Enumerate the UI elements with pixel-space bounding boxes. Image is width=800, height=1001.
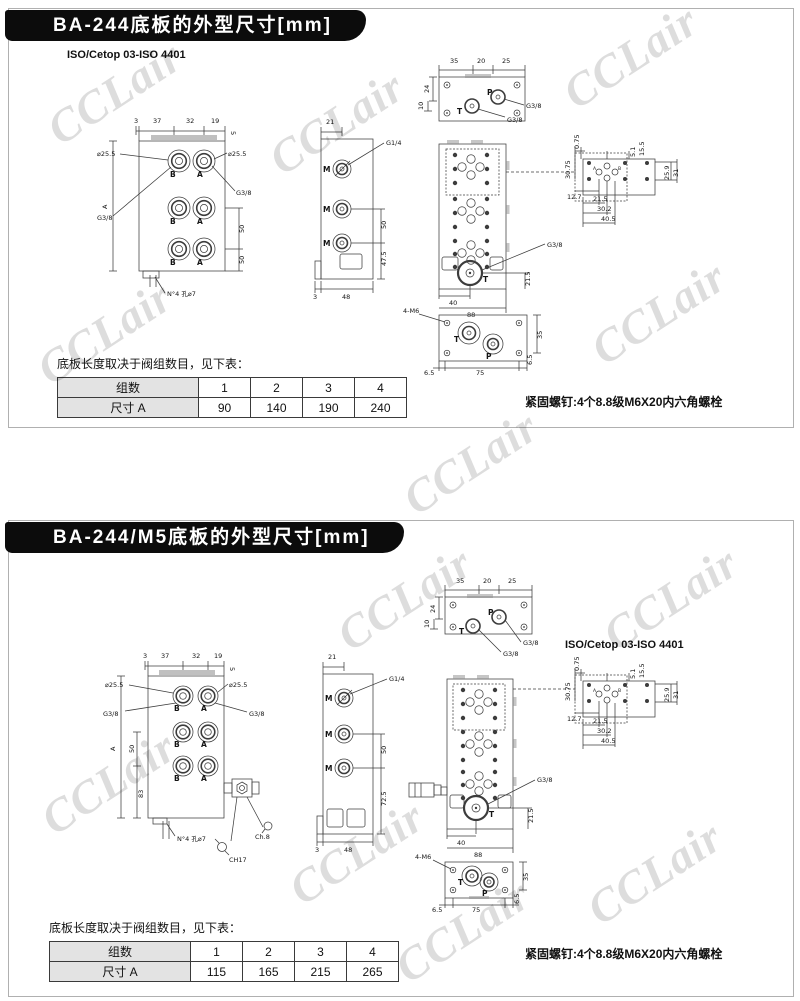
plan-view-drawing: T G3/8 40 88 21.5 (439, 140, 576, 319)
dim-label: 40.5 (601, 215, 615, 223)
port-label: P (488, 608, 494, 617)
dim-label: 88 (474, 851, 482, 859)
end-view-drawing: 35 20 25 24 10 P T G3/8 G3/8 (423, 577, 539, 658)
dim-label: 25 (502, 57, 510, 65)
dim-label: 0.75 (573, 657, 581, 671)
screw-callout: 4-M6 (415, 853, 431, 861)
dim-label: 25.9 (663, 688, 671, 702)
technical-drawings-2: 35 20 25 24 10 P T G3/8 G3/8 3 37 32 19 (9, 521, 793, 996)
dim-label: 47.5 (380, 252, 388, 266)
port-label: T (457, 107, 463, 116)
side-view-drawing: 21 G1/4 M M M 50 47.5 3 48 (313, 118, 402, 301)
thread-label: G3/8 (249, 710, 265, 718)
dim-label: 21.5 (524, 272, 532, 286)
dim-label: 32 (186, 117, 194, 125)
holes-note: N°4 孔⌀7 (177, 835, 206, 843)
side-view-drawing: 21 G1/4 M M M 50 72.5 3 48 (315, 653, 405, 854)
thread-label: G3/8 (103, 710, 119, 718)
dim-label: 20 (483, 577, 491, 585)
port-label: B (618, 166, 621, 172)
thread-label: G3/8 (526, 102, 542, 110)
wrench-icon (215, 839, 229, 855)
dim-label: 50 (380, 746, 388, 754)
port-label: T (459, 627, 465, 636)
front-view-drawing: 3 37 32 19 5 ⌀25.5 G3/8 A ⌀25.5 G3/8 50 … (103, 652, 272, 864)
port-label: B (174, 774, 180, 783)
dim-label: 21 (328, 653, 336, 661)
port-label: A (197, 170, 203, 179)
hex-size-label: Ch.8 (255, 833, 270, 841)
dim-label: 30.2 (597, 727, 611, 735)
dim-label: 15.5 (638, 142, 646, 156)
dim-label: A (109, 746, 117, 751)
thread-label: G1/4 (389, 675, 405, 683)
port-label: M (325, 694, 332, 703)
dim-label: 6.5 (432, 906, 442, 914)
side-valve-attachment (215, 779, 272, 855)
thread-label: G3/8 (236, 189, 252, 197)
allen-key-icon (262, 822, 272, 833)
thread-label: G1/4 (386, 139, 402, 147)
end-view-drawing: 35 20 25 24 10 P T G3/8 G3/8 (417, 57, 542, 124)
dim-label: 20 (477, 57, 485, 65)
dim-label: 0.75 (573, 135, 581, 149)
dim-label: 30.2 (597, 205, 611, 213)
dim-label: 12.7 (567, 193, 581, 201)
dim-label: 6.5 (513, 894, 521, 904)
dim-label: 75 (472, 906, 480, 914)
thread-label: G3/8 (507, 116, 523, 124)
dim-label: 3 (143, 652, 147, 660)
dim-label: 3 (134, 117, 138, 125)
port-label: A (201, 704, 207, 713)
dim-label: 25.9 (663, 166, 671, 180)
dim-label: 50 (380, 221, 388, 229)
bottom-view-drawing: 4-M6 T P 6.5 75 6.5 35 (415, 853, 530, 914)
port-label: B (174, 704, 180, 713)
dim-label: 31 (672, 691, 680, 699)
thread-label: G3/8 (97, 214, 113, 222)
dim-label: 15.5 (638, 664, 646, 678)
holes-note: N°4 孔⌀7 (167, 290, 196, 298)
thread-label: G3/8 (547, 241, 563, 249)
dim-label: 35 (536, 331, 544, 339)
dim-label: ⌀25.5 (97, 150, 115, 158)
dim-label: 37 (153, 117, 161, 125)
port-label: B (170, 170, 176, 179)
dim-label: 6.5 (526, 355, 534, 365)
dim-label: 21.5 (593, 195, 607, 203)
port-label: M (325, 764, 332, 773)
port-label: T (483, 275, 489, 284)
detail-view-drawing: A B 0.75 30.75 5.1 15.5 25.9 31 12.7 21.… (564, 657, 680, 749)
dim-label: 24 (423, 85, 431, 93)
dim-label: ⌀25.5 (229, 681, 247, 689)
port-label: P (482, 889, 488, 898)
dim-label: 32 (192, 652, 200, 660)
dim-label: 5 (229, 131, 237, 135)
dim-label: 5.1 (629, 147, 637, 157)
dim-label: 5 (228, 667, 236, 671)
dim-label: 35 (450, 57, 458, 65)
dim-label: 19 (211, 117, 219, 125)
port-label: T (489, 810, 495, 819)
thread-label: G3/8 (523, 639, 539, 647)
dim-label: 50 (238, 225, 246, 233)
dim-label: 21.5 (527, 809, 535, 823)
section-ba244-m5: BA-244/M5底板的外型尺寸[mm] ISO/Cetop 03-ISO 44… (8, 520, 794, 997)
mount-pattern-holes (461, 688, 497, 800)
port-label: B (174, 740, 180, 749)
dim-label: 10 (423, 620, 431, 628)
port-label: A (201, 774, 207, 783)
dim-label: A (101, 204, 109, 209)
port-label: P (487, 88, 493, 97)
dim-label: ⌀25.5 (105, 681, 123, 689)
dim-label: 35 (522, 873, 530, 881)
dim-label: 12.7 (567, 715, 581, 723)
port-label: B (170, 258, 176, 267)
dim-label: 21 (326, 118, 334, 126)
dim-label: 83 (137, 790, 145, 798)
dim-label: 50 (128, 745, 136, 753)
dim-label: 50 (238, 256, 246, 264)
plan-view-drawing: T G3/8 40 88 21.5 (409, 675, 575, 859)
dim-label: 3 (313, 293, 317, 301)
port-label: A (197, 258, 203, 267)
hex-size-label: CH17 (229, 856, 247, 864)
dim-label: 37 (161, 652, 169, 660)
port-label: T (454, 335, 460, 344)
port-label: B (618, 688, 621, 694)
thread-label: G3/8 (503, 650, 519, 658)
section-ba244: BA-244底板的外型尺寸[mm] ISO/Cetop 03-ISO 4401 … (8, 8, 794, 428)
dim-label: 72.5 (380, 792, 388, 806)
dim-label: 25 (508, 577, 516, 585)
dim-label: 40.5 (601, 737, 615, 745)
port-label: P (486, 352, 492, 361)
dim-label: ⌀25.5 (228, 150, 246, 158)
dim-label: 5.1 (629, 669, 637, 679)
dim-label: 31 (672, 169, 680, 177)
dim-label: 3 (315, 846, 319, 854)
thread-label: G3/8 (537, 776, 553, 784)
technical-drawings-1: 3 37 32 19 5 ⌀25.5 G3/8 A ⌀25.5 G3/8 50 … (9, 9, 793, 427)
dim-label: 10 (417, 102, 425, 110)
port-label: A (197, 217, 203, 226)
dim-label: 24 (429, 605, 437, 613)
dim-label: 30.75 (564, 682, 572, 701)
port-label: A (201, 740, 207, 749)
detail-view-drawing: A B 0.75 30.75 5.1 15.5 25.9 31 12.7 21.… (564, 135, 680, 227)
dim-label: 48 (342, 293, 350, 301)
dim-label: 30.75 (564, 160, 572, 179)
dim-label: 6.5 (424, 369, 434, 377)
mount-pattern-holes (453, 153, 489, 269)
port-label: T (458, 878, 464, 887)
screw-callout: 4-M6 (403, 307, 419, 315)
front-view-drawing: 3 37 32 19 5 ⌀25.5 G3/8 A ⌀25.5 G3/8 50 … (97, 117, 252, 298)
dim-label: 48 (344, 846, 352, 854)
dim-label: 40 (449, 299, 457, 307)
port-label: M (323, 205, 330, 214)
dim-label: 35 (456, 577, 464, 585)
dim-label: 75 (476, 369, 484, 377)
port-label: M (323, 239, 330, 248)
port-label: M (323, 165, 330, 174)
side-handle (409, 783, 447, 797)
dim-label: 40 (457, 839, 465, 847)
port-label: M (325, 730, 332, 739)
port-label: B (170, 217, 176, 226)
dim-label: 19 (214, 652, 222, 660)
dim-label: 21.5 (593, 717, 607, 725)
